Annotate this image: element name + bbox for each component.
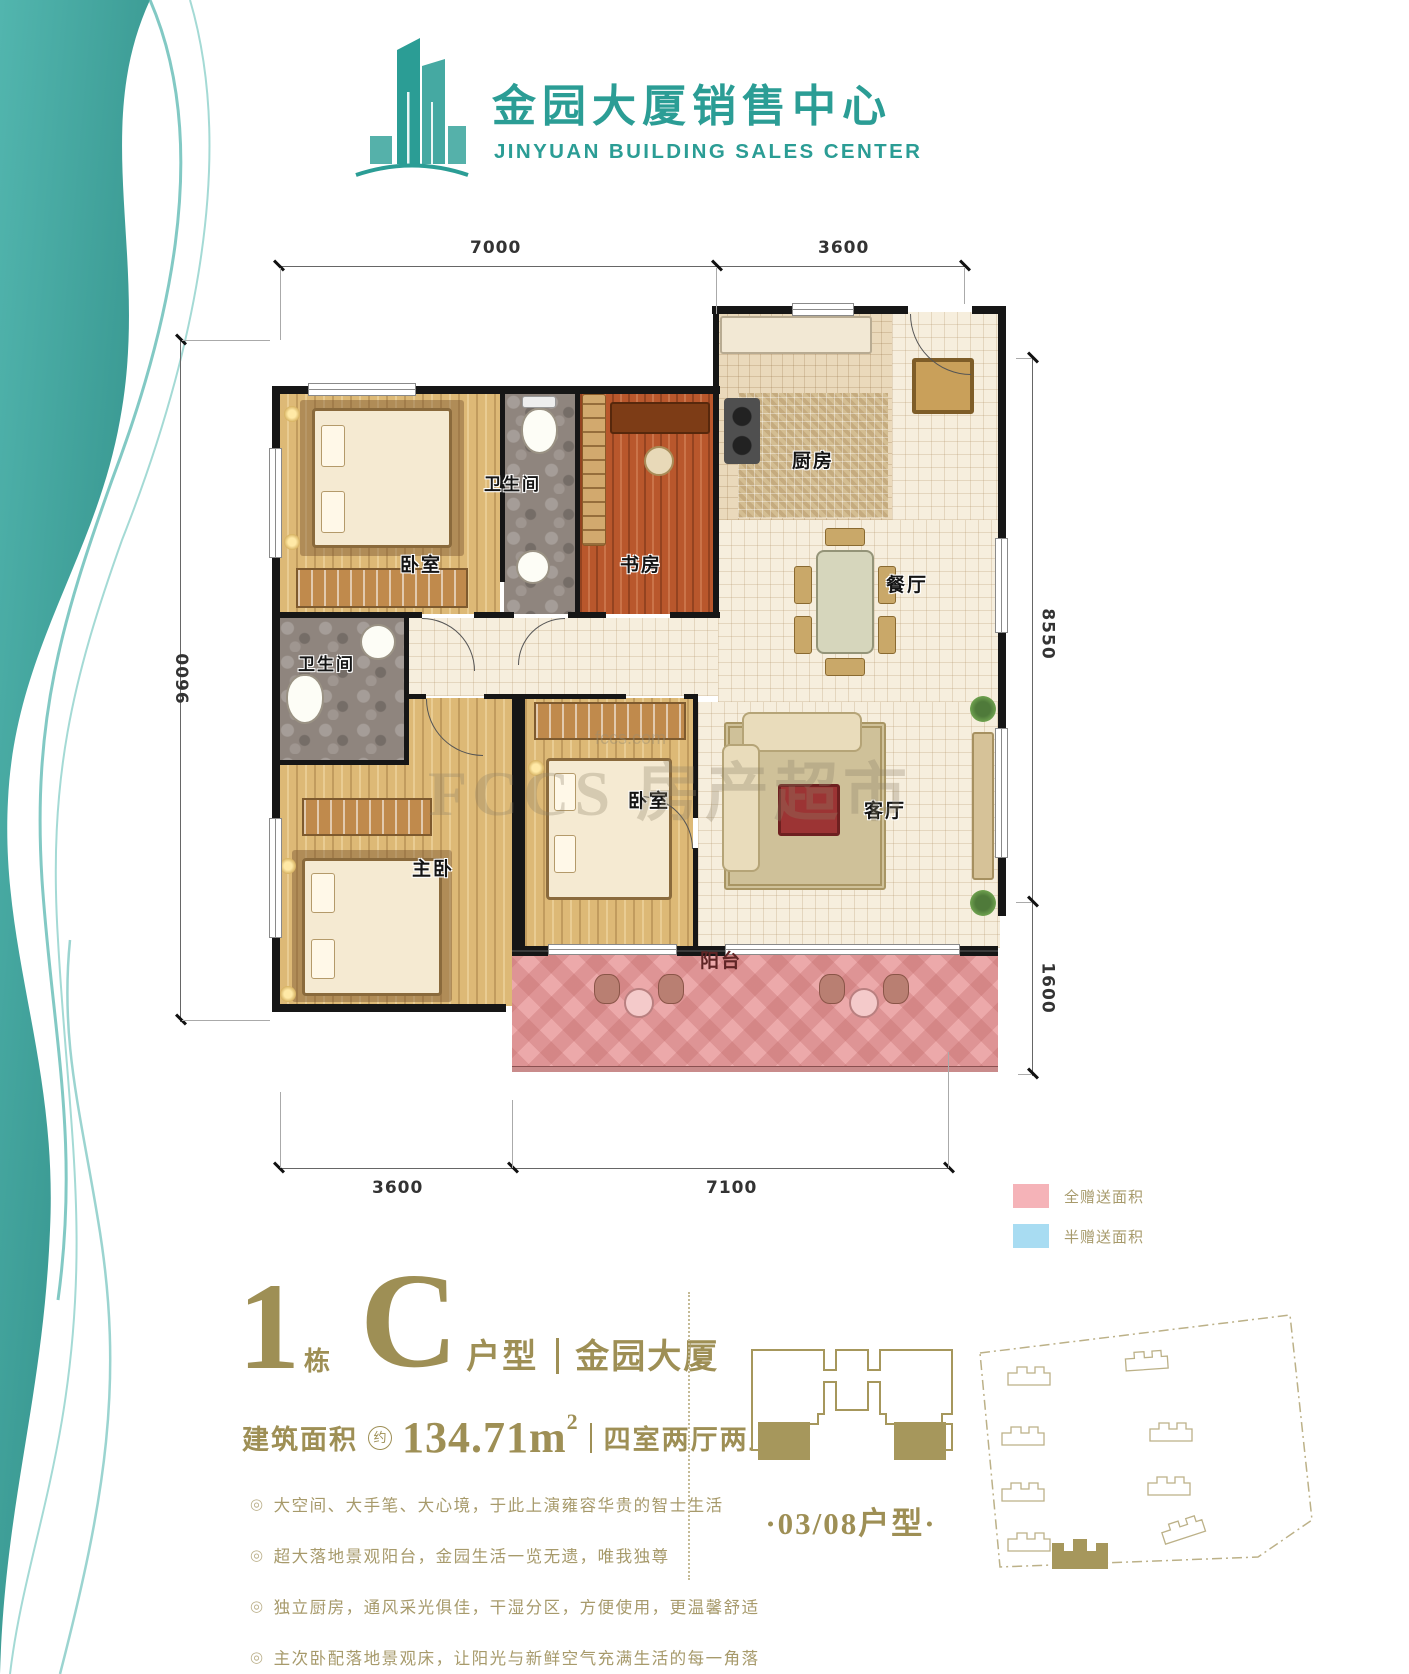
- legend-full-gift: 全赠送面积: [1013, 1184, 1144, 1208]
- dining-chair: [794, 616, 812, 654]
- dining-chair: [825, 658, 865, 676]
- dining-window: [995, 538, 1008, 633]
- area-exponent: 2: [567, 1409, 578, 1435]
- building-suffix: 栋: [304, 1341, 330, 1378]
- room-label-dining: 餐厅: [886, 570, 928, 597]
- dim-left-9600: 9600: [174, 652, 194, 703]
- bathroom1-tank: [522, 396, 556, 408]
- master-lamp2: [280, 986, 296, 1002]
- dim-top-3600: 3600: [818, 238, 869, 258]
- balcony-chair: [658, 974, 684, 1004]
- area-value: 134.71m: [402, 1412, 567, 1463]
- feature-item: ◎ 大空间、大手笔、大心境，于此上演雍容华贵的智士生活: [250, 1492, 760, 1516]
- kitchen-stove: [724, 398, 760, 464]
- balcony-chair: [819, 974, 845, 1004]
- bedroom1-lamp2: [284, 534, 300, 550]
- floor-plan: 卧室 卫生间 书房 厨房 餐厅 卫生间 主卧 卧室 客厅 阳台: [272, 298, 1014, 1088]
- balcony-chair: [594, 974, 620, 1004]
- balcony-door-glass2: [725, 944, 960, 955]
- poster-page: 金园大厦销售中心 JINYUAN BUILDING SALES CENTER: [0, 0, 1409, 1674]
- master-lamp: [280, 858, 296, 874]
- room-label-living: 客厅: [864, 796, 906, 823]
- living-plant: [970, 696, 996, 722]
- room-label-bedroom1: 卧室: [400, 550, 442, 577]
- dotted-divider: [688, 1292, 690, 1580]
- feature-item: ◎ 超大落地景观阳台，金园生活一览无遗，唯我独尊: [250, 1543, 760, 1567]
- dim-right-1600: 1600: [1038, 962, 1058, 1013]
- living-sofa: [742, 712, 862, 752]
- bathroom2-toilet: [286, 674, 324, 724]
- balcony-table: [624, 988, 654, 1018]
- study-desk: [610, 402, 710, 434]
- half-gift-swatch: [1013, 1224, 1049, 1248]
- balcony-table: [849, 988, 879, 1018]
- balcony-chair: [883, 974, 909, 1004]
- feature-text: 独立厨房，通风采光俱佳，干湿分区，方便使用，更温馨舒适: [274, 1594, 760, 1618]
- room-label-kitchen: 厨房: [792, 446, 834, 473]
- unit-letter: C: [360, 1266, 458, 1378]
- approx-circle: 约: [368, 1426, 392, 1450]
- bedroom1-bed: [312, 408, 452, 548]
- master-wardrobe: [302, 798, 432, 836]
- full-gift-swatch: [1013, 1184, 1049, 1208]
- room-label-bathroom1: 卫生间: [484, 470, 541, 495]
- area-info: 建筑面积 约 134.71m 2 四室两厅两卫: [242, 1412, 778, 1463]
- room-label-balcony: 阳台: [700, 946, 742, 973]
- bullet-icon: ◎: [250, 1648, 265, 1666]
- dim-bottom-7100: 7100: [706, 1178, 757, 1198]
- dim-top-7000: 7000: [470, 238, 521, 258]
- teal-swirl-decoration: [0, 0, 250, 1674]
- bedroom1-side-window: [269, 448, 282, 558]
- unit-suffix: 户型: [466, 1329, 538, 1378]
- bedroom1-wardrobe: [296, 568, 468, 608]
- unit-title: 1 栋 C 户型 金园大厦: [238, 1266, 719, 1378]
- site-plan: [960, 1295, 1330, 1595]
- bedroom2-wardrobe: [534, 702, 686, 740]
- bullet-icon: ◎: [250, 1597, 265, 1615]
- area-divider: [590, 1423, 592, 1453]
- building-logo-icon: [352, 32, 472, 197]
- feature-list: ◎ 大空间、大手笔、大心境，于此上演雍容华贵的智士生活 ◎ 超大落地景观阳台，金…: [250, 1492, 760, 1674]
- living-plant2: [970, 890, 996, 916]
- room-label-bedroom2: 卧室: [628, 786, 670, 813]
- balcony-floor: [512, 954, 998, 1070]
- title-divider: [556, 1338, 559, 1374]
- legend-half-gift: 半赠送面积: [1013, 1224, 1144, 1248]
- balcony-railing: [512, 1066, 998, 1072]
- living-window: [995, 728, 1008, 858]
- study-chair: [644, 446, 674, 476]
- kitchen-counter: [720, 316, 872, 354]
- dim-right-8550: 8550: [1038, 608, 1058, 659]
- master-window: [269, 818, 282, 938]
- bedroom2-lamp: [528, 760, 544, 776]
- living-coffee-table: [778, 784, 840, 836]
- dining-chair: [794, 566, 812, 604]
- page-subtitle: JINYUAN BUILDING SALES CENTER: [494, 140, 922, 164]
- room-label-master: 主卧: [412, 854, 454, 881]
- page-title: 金园大厦销售中心: [492, 70, 892, 134]
- bullet-icon: ◎: [250, 1495, 265, 1513]
- feature-item: ◎ 独立厨房，通风采光俱佳，干湿分区，方便使用，更温馨舒适: [250, 1594, 760, 1618]
- study-bookshelf: [582, 394, 606, 546]
- kitchen-window: [792, 303, 854, 316]
- building-number: 1: [238, 1276, 300, 1378]
- feature-text: 主次卧配落地景观床，让阳光与新鲜空气充满生活的每一角落: [274, 1645, 760, 1669]
- dining-chair: [878, 616, 896, 654]
- full-gift-label: 全赠送面积: [1064, 1186, 1144, 1207]
- keyplate-caption: ·03/08户型·: [738, 1498, 964, 1543]
- dining-chair: [825, 528, 865, 546]
- room-label-bathroom2: 卫生间: [298, 650, 355, 675]
- building-keyplate: [742, 1322, 962, 1482]
- area-label: 建筑面积: [242, 1418, 358, 1457]
- room-label-study: 书房: [620, 550, 662, 577]
- dim-bottom-3600: 3600: [372, 1178, 423, 1198]
- living-side-sofa: [722, 744, 760, 872]
- bathroom2-sink: [360, 624, 396, 660]
- bathroom1-sink: [516, 550, 550, 584]
- feature-text: 超大落地景观阳台，金园生活一览无遗，唯我独尊: [274, 1543, 670, 1567]
- tv-cabinet: [972, 732, 994, 880]
- feature-item: ◎ 主次卧配落地景观床，让阳光与新鲜空气充满生活的每一角落: [250, 1645, 760, 1669]
- dining-table: [816, 550, 874, 654]
- balcony-door-glass: [548, 944, 677, 955]
- feature-text: 大空间、大手笔、大心境，于此上演雍容华贵的智士生活: [274, 1492, 724, 1516]
- bullet-icon: ◎: [250, 1546, 265, 1564]
- project-name: 金园大厦: [575, 1329, 719, 1378]
- bathroom1-toilet: [521, 408, 558, 454]
- bedroom1-window: [308, 383, 416, 396]
- half-gift-label: 半赠送面积: [1064, 1226, 1144, 1247]
- bedroom1-lamp: [284, 406, 300, 422]
